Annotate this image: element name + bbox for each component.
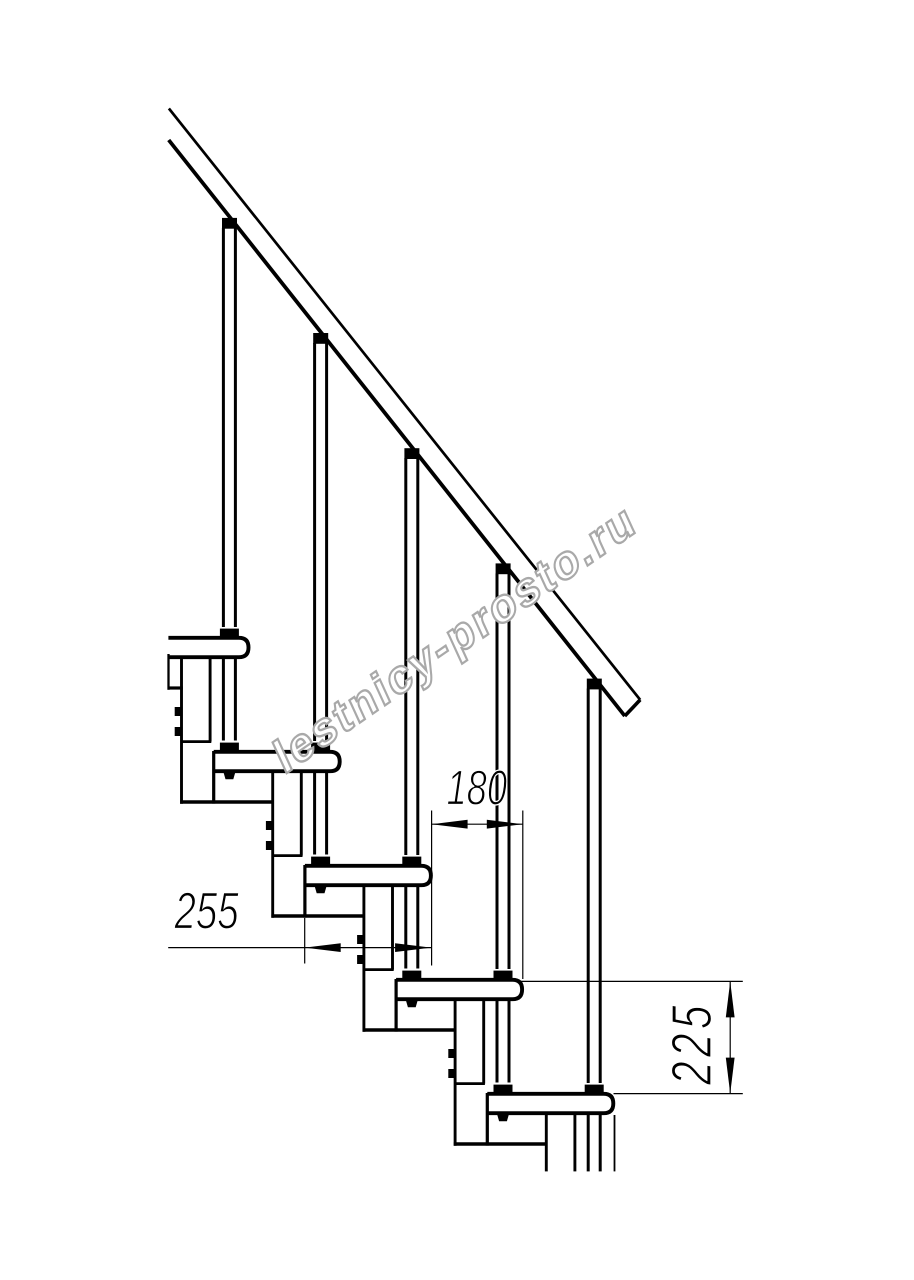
svg-text:180: 180: [447, 761, 508, 816]
svg-text:225: 225: [660, 1001, 724, 1086]
svg-text:255: 255: [174, 882, 240, 940]
